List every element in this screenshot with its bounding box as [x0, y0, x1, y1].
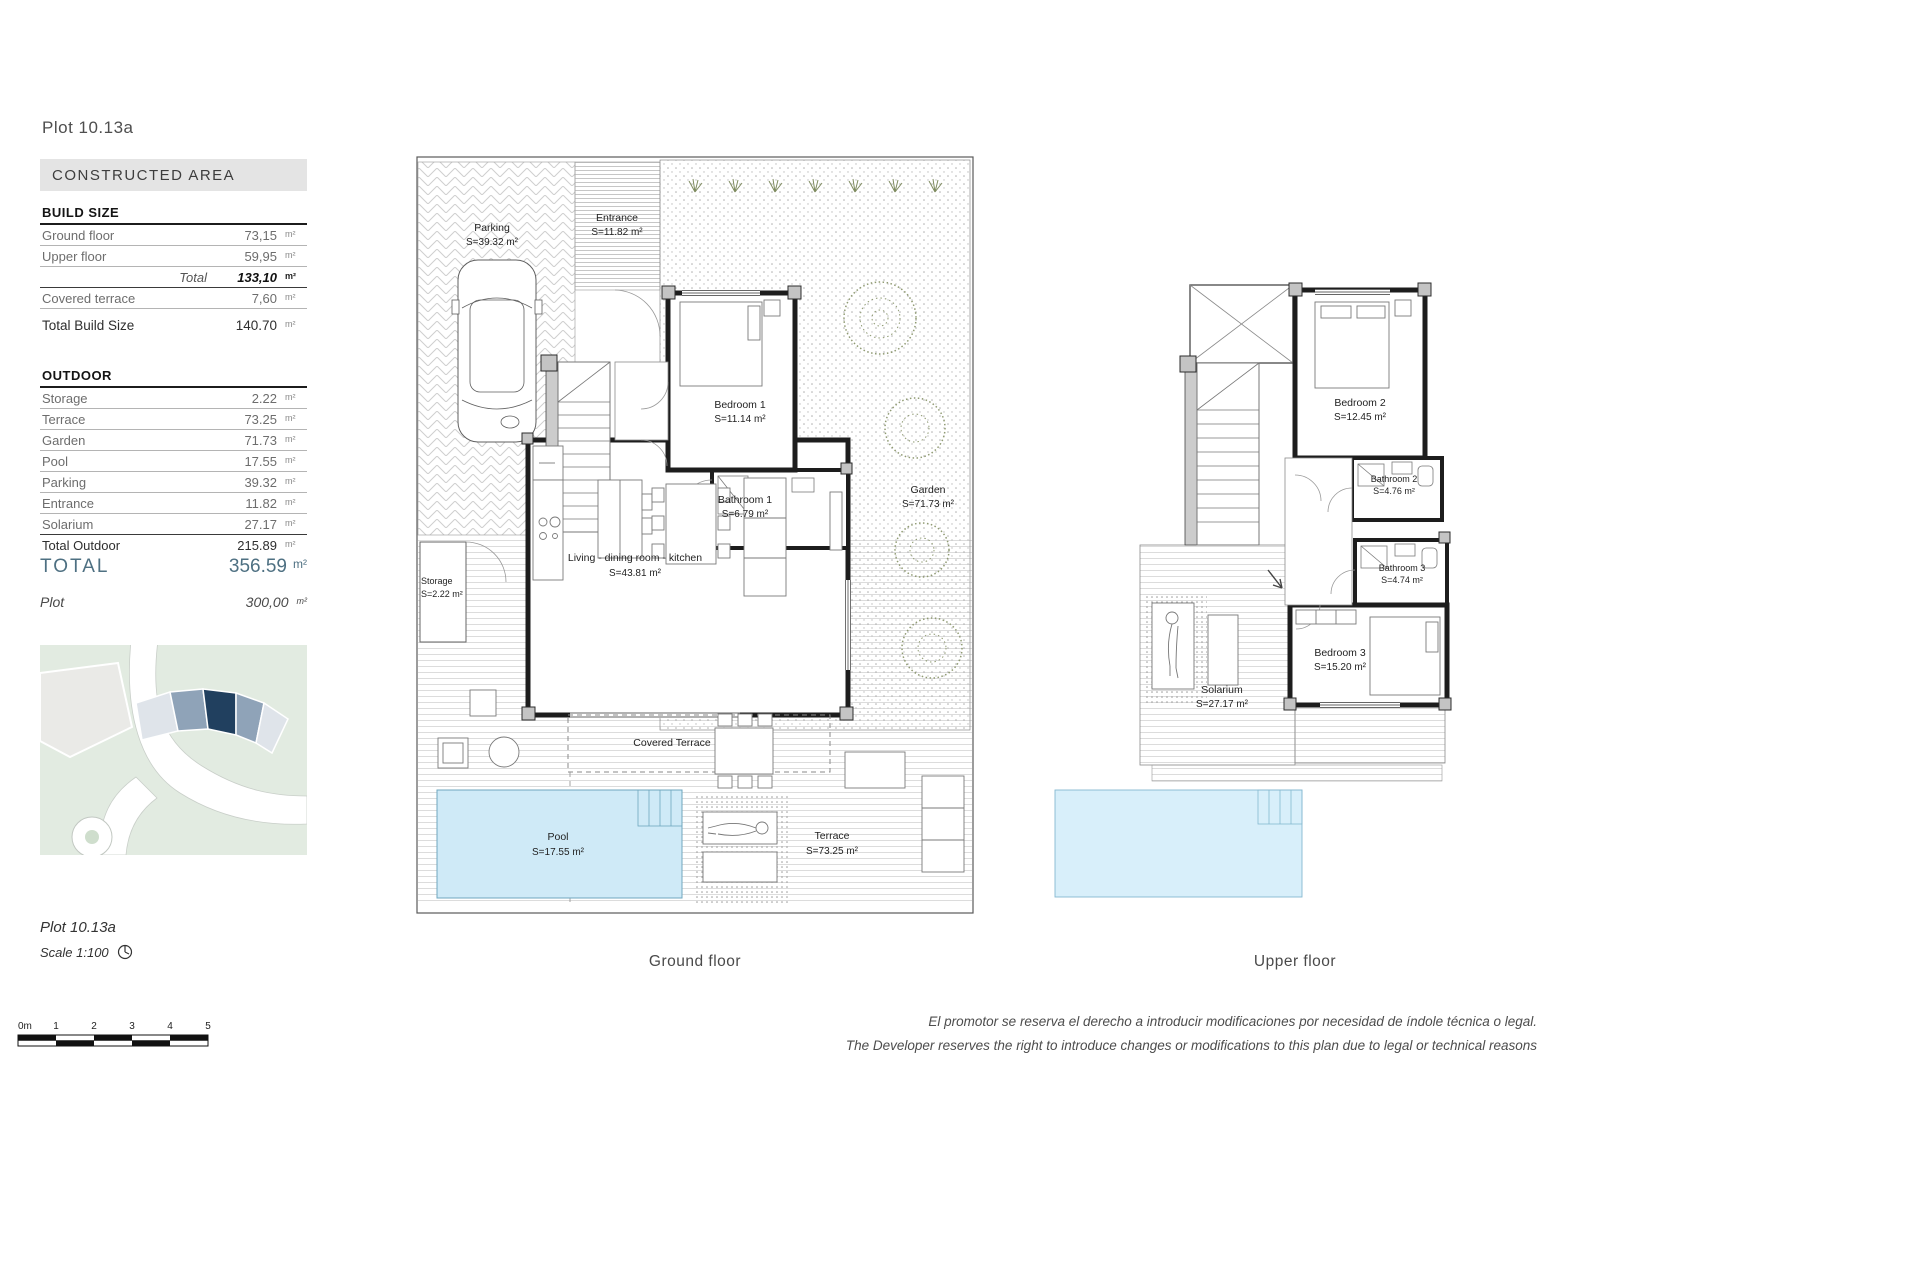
scale-tick: 2 [91, 1021, 97, 1032]
row-unit: m² [277, 292, 307, 302]
ground-floor-plan: Parking S=39.32 m² Entrance S=11.82 m² B… [410, 150, 980, 920]
row-unit: m² [277, 518, 307, 528]
north-compass-icon [117, 944, 133, 960]
constructed-area-header: CONSTRUCTED AREA [40, 159, 307, 191]
scale-tick: 5 [205, 1021, 211, 1032]
row-value: 11.82 [221, 496, 277, 511]
row-unit: m² [277, 497, 307, 507]
roof-terrace [1190, 285, 1293, 363]
row-label: Total Outdoor [42, 538, 221, 553]
table-row: Pool 17.55 m² [40, 451, 307, 472]
row-label: Pool [42, 454, 221, 469]
total-value: 133,10 [221, 270, 277, 285]
row-unit: m² [277, 476, 307, 486]
row-value: 73,15 [221, 228, 277, 243]
room-area: S=6.79 m² [722, 509, 769, 520]
highlighted-plot [203, 689, 236, 735]
room-area: S=2.22 m² [421, 589, 463, 599]
row-unit: m² [277, 319, 307, 329]
row-label: Total Build Size [42, 318, 221, 333]
disclaimer-en: The Developer reserves the right to intr… [680, 1034, 1537, 1058]
upper-pool [1055, 790, 1302, 897]
entrance-zone [575, 162, 660, 290]
room-area: S=11.14 m² [714, 414, 766, 425]
room-area: S=15.20 m² [1314, 662, 1367, 673]
outdoor-dining-set [715, 714, 773, 788]
plot-area-row: Plot 300,00 m² [40, 594, 307, 610]
table-row: Ground floor 73,15 m² [40, 225, 307, 246]
scale-bar-segments [18, 1035, 208, 1046]
row-unit: m² [277, 250, 307, 260]
row-value: 59,95 [221, 249, 277, 264]
row-unit: m² [277, 229, 307, 239]
row-label: Solarium [42, 517, 221, 532]
room-area: S=39.32 m² [466, 237, 519, 248]
row-value: 71.73 [221, 433, 277, 448]
room-label: Bedroom 1 [714, 399, 766, 411]
room-area: S=27.17 m² [1196, 699, 1249, 710]
legal-disclaimer: El promotor se reserva el derecho a intr… [680, 1010, 1537, 1057]
plot-label: Plot [40, 594, 246, 610]
room-area: S=71.73 m² [902, 499, 955, 510]
footer-plot-label: Plot 10.13a [40, 919, 116, 936]
scale-tick: 1 [53, 1021, 59, 1032]
kitchen-fixtures [533, 446, 563, 580]
site-location-map [40, 645, 307, 855]
room-area: S=12.45 m² [1334, 412, 1387, 423]
page-title: Plot 10.13a [42, 118, 134, 138]
upper-floor-plan: Bedroom 2 S=12.45 m² Bathroom 2 S=4.76 m… [1040, 270, 1550, 920]
row-unit: m² [277, 539, 307, 549]
row-value: 140.70 [221, 318, 277, 333]
room-label: Bathroom 2 [1371, 474, 1418, 484]
room-label: Covered Terrace [633, 737, 711, 749]
roundabout-center [85, 830, 99, 844]
room-area: S=43.81 m² [609, 568, 662, 579]
scale-bar: 0m 1 2 3 4 5 [8, 1018, 238, 1056]
ground-floor-caption: Ground floor [410, 953, 980, 971]
deck-strip [1295, 705, 1445, 763]
total-label: Total [179, 270, 207, 285]
grand-total-label: TOTAL [40, 556, 229, 578]
total-outdoor-row: Total Outdoor 215.89 m² [40, 534, 307, 555]
room-label: Parking [474, 222, 510, 234]
deck-step [1152, 765, 1442, 781]
row-unit: m² [277, 455, 307, 465]
room-area: S=4.74 m² [1381, 575, 1423, 585]
row-label: Parking [42, 475, 221, 490]
scale-label: Scale 1:100 [40, 945, 109, 960]
room-label: Bathroom 1 [718, 494, 772, 506]
table-row: Entrance 11.82 m² [40, 493, 307, 514]
outdoor-table: OUTDOOR Storage 2.22 m² Terrace 73.25 m²… [40, 366, 307, 555]
room-label: Terrace [814, 830, 849, 842]
room-area: S=4.76 m² [1373, 486, 1415, 496]
row-unit: m² [277, 413, 307, 423]
upper-hallway [1285, 458, 1352, 605]
row-label: Upper floor [42, 249, 221, 264]
pool [437, 790, 682, 898]
row-value: 17.55 [221, 454, 277, 469]
table-row: Solarium 27.17 m² [40, 514, 307, 535]
table-row: Upper floor 59,95 m² [40, 246, 307, 267]
total-unit: m² [277, 271, 307, 281]
room-area: S=11.82 m² [591, 227, 643, 238]
row-value: 215.89 [221, 538, 277, 553]
row-value: 27.17 [221, 517, 277, 532]
build-size-table: BUILD SIZE Ground floor 73,15 m² Upper f… [40, 203, 307, 335]
row-value: 7,60 [221, 291, 277, 306]
plot-unit: m² [289, 596, 308, 606]
total-build-size-row: Total Build Size 140.70 m² [40, 309, 307, 335]
row-label: Ground floor [42, 228, 221, 243]
table-row: Storage 2.22 m² [40, 388, 307, 409]
row-unit: m² [277, 392, 307, 402]
upper-floor-caption: Upper floor [1040, 953, 1550, 971]
room-label: Bedroom 3 [1314, 647, 1366, 659]
build-total-row: Total 133,10 m² [40, 267, 307, 288]
scale-tick: 4 [167, 1021, 173, 1032]
disclaimer-es: El promotor se reserva el derecho a intr… [680, 1010, 1537, 1034]
build-size-title: BUILD SIZE [40, 203, 307, 225]
row-label: Entrance [42, 496, 221, 511]
grand-total-row: TOTAL 356.59 m² [40, 556, 307, 578]
plan-sheet: Plot 10.13a CONSTRUCTED AREA BUILD SIZE … [0, 0, 1920, 1280]
row-unit: m² [277, 434, 307, 444]
room-label: Living - dining room - kitchen [568, 552, 702, 564]
room-area: S=73.25 m² [806, 846, 859, 857]
room-label: Entrance [596, 212, 638, 224]
row-label: Covered terrace [42, 291, 221, 306]
row-label: Garden [42, 433, 221, 448]
plot-value: 300,00 [246, 594, 289, 610]
row-value: 39.32 [221, 475, 277, 490]
car-icon [452, 260, 542, 442]
room-label: Bathroom 3 [1379, 563, 1426, 573]
room-label: Bedroom 2 [1334, 397, 1386, 409]
row-label: Storage [42, 391, 221, 406]
footer-scale: Scale 1:100 [40, 944, 133, 960]
table-row: Covered terrace 7,60 m² [40, 288, 307, 309]
room-area: S=17.55 m² [532, 847, 585, 858]
table-row: Terrace 73.25 m² [40, 409, 307, 430]
table-row: Parking 39.32 m² [40, 472, 307, 493]
row-value: 73.25 [221, 412, 277, 427]
sun-loungers [695, 795, 790, 903]
room-label: Solarium [1201, 684, 1243, 696]
scale-tick: 3 [129, 1021, 135, 1032]
room-label: Garden [910, 484, 945, 496]
row-value: 2.22 [221, 391, 277, 406]
outdoor-title: OUTDOOR [40, 366, 307, 388]
grand-total-unit: m² [287, 557, 307, 571]
scale-zero: 0m [18, 1021, 32, 1032]
grand-total-value: 356.59 [229, 556, 287, 578]
row-label: Terrace [42, 412, 221, 427]
room-label: Pool [547, 831, 568, 843]
table-row: Garden 71.73 m² [40, 430, 307, 451]
room-label: Storage [421, 576, 453, 586]
